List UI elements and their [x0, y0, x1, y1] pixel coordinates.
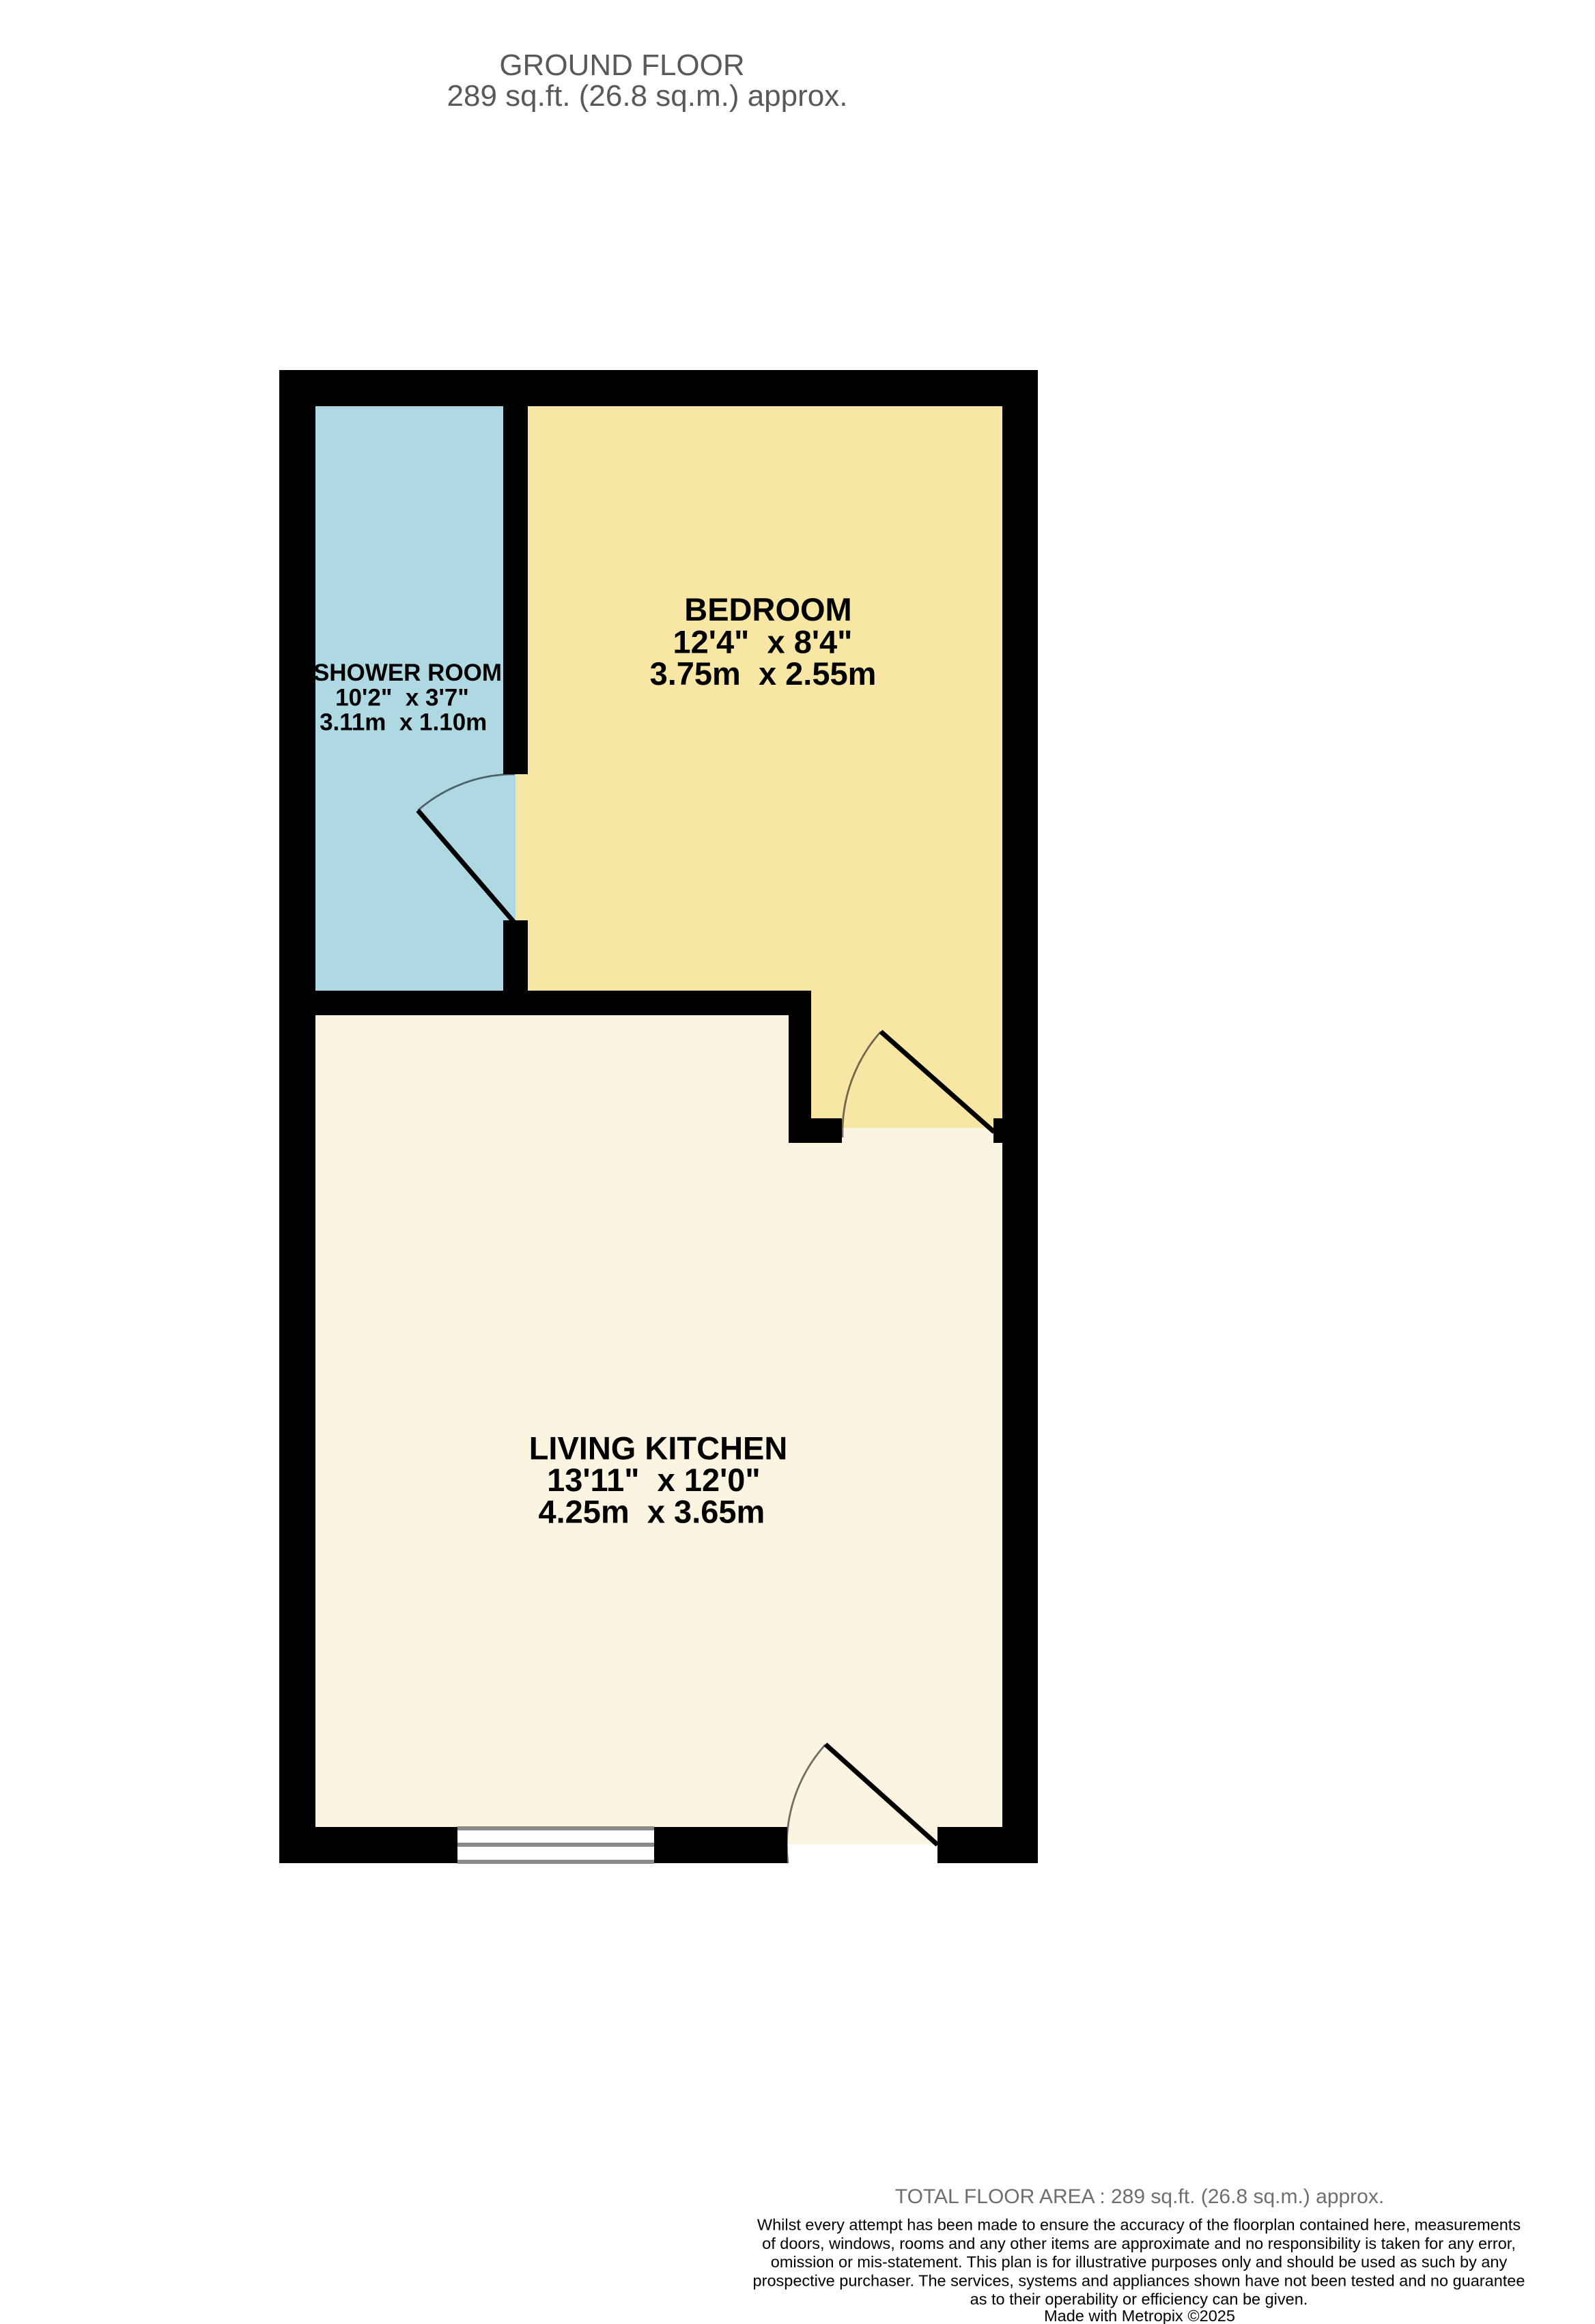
svg-text:13'11" x 12'0": 13'11" x 12'0" [547, 1462, 761, 1498]
svg-text:SHOWER ROOM: SHOWER ROOM [313, 660, 502, 686]
svg-text:Whilst every attempt has been: Whilst every attempt has been made to en… [757, 2216, 1521, 2234]
svg-text:LIVING KITCHEN: LIVING KITCHEN [529, 1430, 788, 1466]
svg-text:GROUND FLOOR: GROUND FLOOR [499, 48, 744, 82]
svg-text:12'4" x 8'4": 12'4" x 8'4" [673, 624, 853, 660]
svg-text:TOTAL FLOOR AREA : 289 sq.ft.: TOTAL FLOOR AREA : 289 sq.ft. (26.8 sq.m… [895, 2185, 1384, 2208]
svg-text:omission or mis-statement. Thi: omission or mis-statement. This plan is … [771, 2253, 1508, 2271]
svg-text:Made with Metropix ©2025: Made with Metropix ©2025 [1044, 2307, 1235, 2324]
svg-text:3.75m x 2.55m: 3.75m x 2.55m [650, 655, 877, 692]
svg-text:4.25m x 3.65m: 4.25m x 3.65m [538, 1494, 765, 1530]
svg-text:BEDROOM: BEDROOM [684, 591, 851, 627]
svg-text:289 sq.ft. (26.8 sq.m.) approx: 289 sq.ft. (26.8 sq.m.) approx. [447, 79, 848, 113]
svg-text:of doors, windows, rooms and a: of doors, windows, rooms and any other i… [762, 2235, 1516, 2252]
svg-text:10'2" x 3'7": 10'2" x 3'7" [335, 685, 469, 711]
svg-text:as to their operability or eff: as to their operability or efficiency ca… [970, 2291, 1308, 2308]
svg-text:prospective purchaser. The ser: prospective purchaser. The services, sys… [753, 2271, 1525, 2289]
svg-text:3.11m x 1.10m: 3.11m x 1.10m [320, 709, 487, 736]
